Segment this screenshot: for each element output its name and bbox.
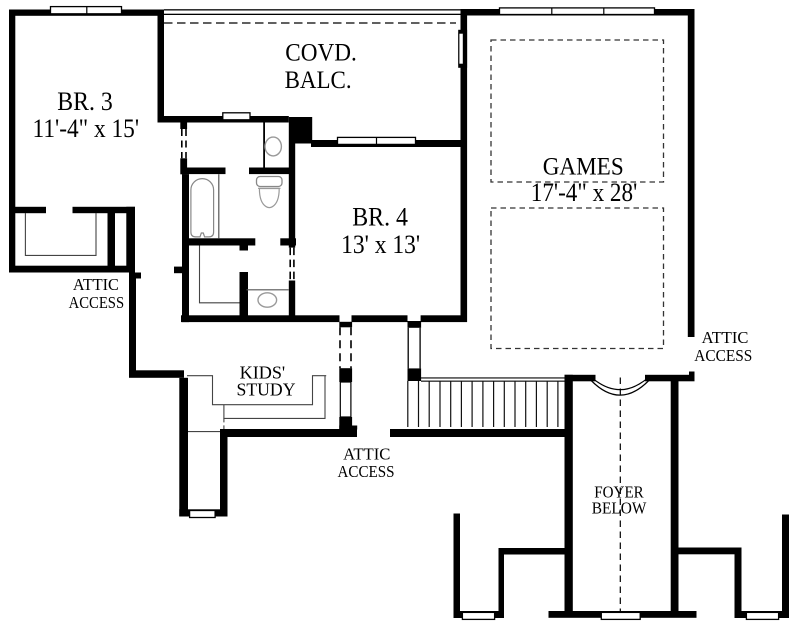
svg-text:17'-4" x 28': 17'-4" x 28' <box>531 178 638 207</box>
svg-text:ATTIC: ATTIC <box>73 275 119 294</box>
svg-text:ACCESS: ACCESS <box>338 462 395 481</box>
svg-text:ACCESS: ACCESS <box>694 346 752 365</box>
svg-text:STUDY: STUDY <box>237 380 296 400</box>
svg-text:ACCESS: ACCESS <box>69 293 125 312</box>
svg-text:BR. 3: BR. 3 <box>57 87 113 116</box>
svg-text:BALC.: BALC. <box>285 65 352 94</box>
svg-text:13' x 13': 13' x 13' <box>341 230 420 259</box>
svg-text:BELOW: BELOW <box>592 499 648 518</box>
svg-text:ATTIC: ATTIC <box>343 445 390 464</box>
svg-text:ATTIC: ATTIC <box>702 328 749 347</box>
svg-text:GAMES: GAMES <box>543 152 624 181</box>
svg-text:11'-4" x 15': 11'-4" x 15' <box>33 114 140 143</box>
svg-text:COVD.: COVD. <box>285 38 357 67</box>
svg-text:BR. 4: BR. 4 <box>352 203 408 232</box>
